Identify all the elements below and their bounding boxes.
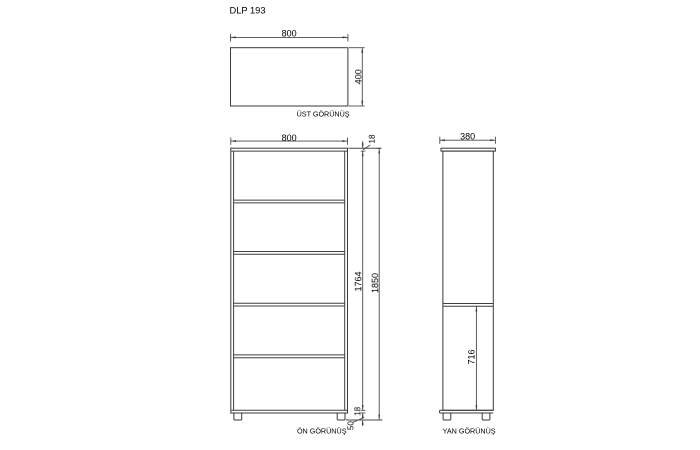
svg-text:ÜST GÖRÜNÜŞ: ÜST GÖRÜNÜŞ (297, 109, 350, 118)
svg-text:400: 400 (354, 69, 364, 84)
svg-text:800: 800 (282, 133, 297, 143)
svg-text:800: 800 (282, 29, 297, 39)
svg-text:ÖN GÖRÜNÜŞ: ÖN GÖRÜNÜŞ (297, 426, 347, 435)
svg-text:YAN GÖRÜNÜŞ: YAN GÖRÜNÜŞ (443, 426, 496, 435)
svg-text:50: 50 (346, 421, 355, 430)
svg-text:18: 18 (368, 134, 377, 143)
svg-text:716: 716 (467, 349, 477, 364)
svg-text:1764: 1764 (353, 271, 363, 291)
svg-text:18: 18 (353, 406, 362, 415)
svg-text:DLP 193: DLP 193 (230, 6, 266, 16)
svg-text:380: 380 (460, 132, 475, 142)
svg-text:1850: 1850 (370, 273, 380, 293)
